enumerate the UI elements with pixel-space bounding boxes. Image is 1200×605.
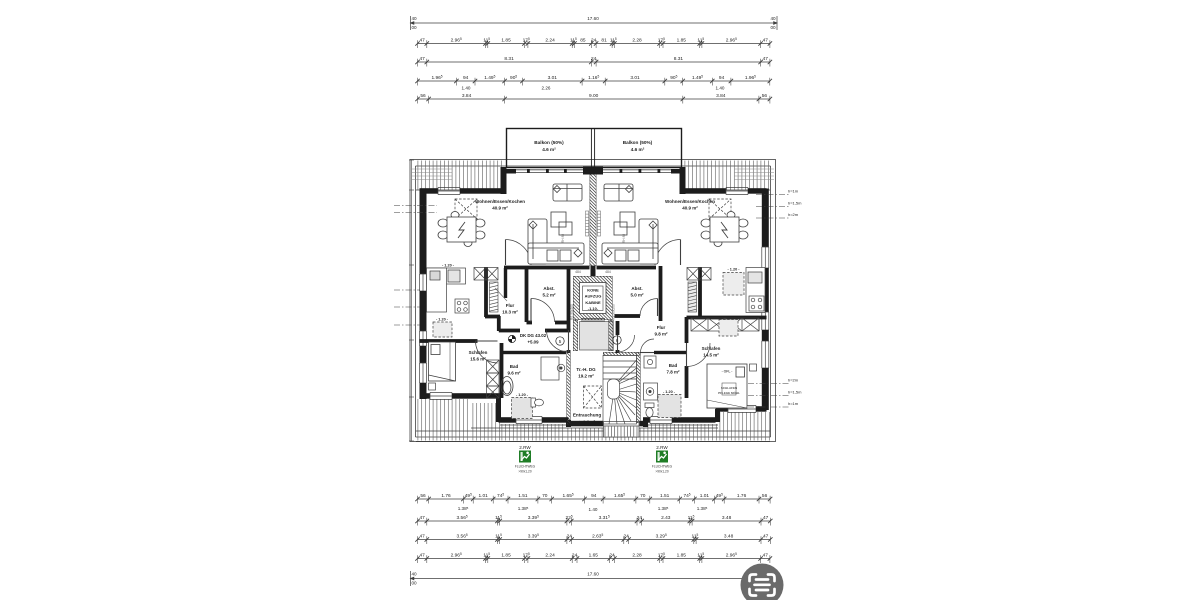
svg-text:1.85: 1.85	[501, 37, 511, 43]
svg-text:2.26: 2.26	[542, 86, 551, 91]
svg-text:10.3 m²: 10.3 m²	[502, 310, 518, 315]
svg-text:1.85: 1.85	[677, 37, 687, 43]
svg-text:2.RW: 2.RW	[656, 445, 668, 450]
svg-text:h=1m: h=1m	[788, 189, 799, 194]
svg-text:AUFZUG: AUFZUG	[585, 294, 602, 299]
svg-text:17.60: 17.60	[587, 572, 599, 577]
svg-text:8.31: 8.31	[504, 56, 514, 62]
svg-text:47: 47	[763, 56, 769, 62]
svg-text:KABINE: KABINE	[585, 300, 601, 305]
svg-text:- 1.20 -: - 1.20 -	[436, 318, 449, 322]
svg-text:24: 24	[637, 515, 643, 521]
svg-text:2.28: 2.28	[632, 552, 642, 558]
svg-text:h=1,5m: h=1,5m	[788, 390, 802, 395]
svg-text:Bad: Bad	[669, 363, 678, 368]
svg-text:h=2m: h=2m	[788, 378, 799, 383]
svg-text:>90x1,20: >90x1,20	[655, 470, 668, 474]
svg-text:Wohnen/Essen/Kochen: Wohnen/Essen/Kochen	[475, 199, 525, 204]
svg-text:1.85: 1.85	[501, 552, 511, 558]
svg-text:- OFL -: - OFL -	[722, 370, 733, 374]
svg-text:47: 47	[763, 515, 769, 521]
svg-text:1.65: 1.65	[589, 552, 599, 558]
svg-text:8.31: 8.31	[674, 56, 684, 62]
svg-text:24: 24	[572, 552, 578, 558]
svg-text:RS 90x200: RS 90x200	[570, 304, 574, 320]
svg-text:94: 94	[591, 493, 597, 499]
svg-text:Abst.: Abst.	[631, 286, 642, 291]
svg-text:1.40: 1.40	[462, 86, 471, 91]
svg-text:2.RW: 2.RW	[519, 445, 531, 450]
svg-text:KONE: KONE	[587, 288, 599, 293]
svg-text:Flur: Flur	[657, 325, 666, 330]
svg-text:56: 56	[420, 93, 426, 99]
svg-text:- 1.20 -: - 1.20 -	[442, 264, 455, 268]
svg-text:2.43: 2.43	[661, 515, 671, 521]
svg-text:DK DG 43.02: DK DG 43.02	[520, 333, 547, 338]
svg-text:Tr.-H. DG: Tr.-H. DG	[576, 367, 596, 372]
svg-text:40: 40	[770, 16, 776, 21]
svg-text:> 1.0m²: > 1.0m²	[579, 419, 595, 424]
svg-text:Entrauchung: Entrauchung	[573, 413, 602, 418]
svg-text:9.8 m²: 9.8 m²	[654, 332, 668, 337]
svg-text:Balkon (50%): Balkon (50%)	[623, 140, 653, 145]
svg-text:40: 40	[411, 572, 417, 577]
svg-text:47: 47	[420, 56, 426, 62]
svg-text:+5.09: +5.09	[527, 340, 539, 345]
svg-text:00: 00	[411, 25, 417, 30]
svg-text:9.00: 9.00	[589, 93, 599, 99]
svg-text:1.51: 1.51	[660, 493, 670, 499]
svg-text:2.24: 2.24	[545, 37, 555, 43]
svg-text:3.01: 3.01	[630, 75, 640, 81]
svg-text:- 1.20 -: - 1.20 -	[727, 268, 740, 272]
svg-text:56: 56	[762, 493, 768, 499]
svg-text:3.48: 3.48	[724, 533, 734, 539]
svg-text:24: 24	[591, 56, 597, 62]
svg-text:40.9 m²: 40.9 m²	[682, 206, 698, 211]
svg-text:1.40: 1.40	[589, 507, 598, 512]
svg-text:24: 24	[591, 37, 597, 43]
svg-text:4.6 m²: 4.6 m²	[631, 147, 645, 152]
svg-text:94: 94	[719, 75, 725, 81]
svg-text:484: 484	[605, 270, 611, 274]
svg-text:h=1m: h=1m	[788, 401, 799, 406]
svg-text:Schlafen: Schlafen	[469, 350, 488, 355]
svg-text:h=2m: h=2m	[788, 212, 799, 217]
svg-text:56: 56	[420, 493, 426, 499]
svg-text:47: 47	[420, 533, 426, 539]
svg-text:1.51: 1.51	[518, 493, 528, 499]
svg-text:-1.10-: -1.10-	[588, 306, 599, 311]
svg-text:24: 24	[567, 533, 573, 539]
svg-text:47: 47	[763, 37, 769, 43]
svg-text:FLUCHTWEG: FLUCHTWEG	[515, 465, 536, 469]
svg-text:2.24: 2.24	[545, 552, 555, 558]
svg-text:Wohnen/Essen/Kochen: Wohnen/Essen/Kochen	[665, 199, 715, 204]
svg-text:81: 81	[601, 37, 607, 43]
svg-text:4.6 m²: 4.6 m²	[542, 147, 556, 152]
svg-text:70: 70	[542, 493, 548, 499]
svg-text:1.40: 1.40	[716, 86, 725, 91]
svg-text:1.76: 1.76	[737, 493, 747, 499]
svg-text:PFLEGE MÖBL: PFLEGE MÖBL	[718, 390, 740, 395]
svg-text:5.2 m²: 5.2 m²	[542, 293, 556, 298]
svg-text:RS 90x200: RS 90x200	[612, 304, 616, 320]
svg-text:40.9 m²: 40.9 m²	[492, 206, 508, 211]
svg-text:47: 47	[420, 552, 426, 558]
svg-text:1.76: 1.76	[441, 493, 451, 499]
svg-text:1.85: 1.85	[677, 552, 687, 558]
svg-text:00: 00	[770, 25, 776, 30]
svg-text:17.60: 17.60	[587, 16, 599, 21]
svg-text:94: 94	[463, 75, 469, 81]
svg-text:00: 00	[411, 581, 417, 586]
svg-text:40: 40	[411, 16, 417, 21]
svg-text:3.84: 3.84	[716, 93, 726, 99]
svg-text:70: 70	[640, 493, 646, 499]
svg-text:SCHLAFEN: SCHLAFEN	[721, 386, 737, 390]
svg-text:Balkon (50%): Balkon (50%)	[534, 140, 564, 145]
svg-text:9.6 m²: 9.6 m²	[507, 371, 521, 376]
svg-text:47: 47	[420, 37, 426, 43]
svg-text:- 1.20 -: - 1.20 -	[663, 390, 676, 394]
svg-text:h=1,5m: h=1,5m	[788, 201, 802, 206]
svg-text:484: 484	[575, 270, 581, 274]
svg-text:19.2 m²: 19.2 m²	[578, 374, 594, 379]
svg-text:FLUCHTWEG: FLUCHTWEG	[652, 465, 673, 469]
svg-text:24: 24	[609, 552, 615, 558]
svg-text:Bad: Bad	[510, 364, 519, 369]
svg-text:Abst.: Abst.	[543, 286, 554, 291]
svg-text:Schlafen: Schlafen	[702, 346, 721, 351]
svg-text:2.28: 2.28	[632, 37, 642, 43]
svg-text:>90x1,20: >90x1,20	[518, 470, 531, 474]
svg-text:3.48: 3.48	[722, 515, 732, 521]
svg-text:24: 24	[624, 533, 630, 539]
svg-text:47: 47	[763, 533, 769, 539]
svg-text:5.0 m²: 5.0 m²	[630, 293, 644, 298]
svg-text:47: 47	[420, 515, 426, 521]
svg-text:15.6 m²: 15.6 m²	[470, 357, 486, 362]
svg-text:3.01: 3.01	[548, 75, 558, 81]
svg-text:Flur: Flur	[506, 303, 515, 308]
svg-text:47: 47	[763, 552, 769, 558]
svg-text:1.01: 1.01	[700, 493, 710, 499]
svg-text:- 1.20 -: - 1.20 -	[516, 393, 529, 397]
svg-text:56: 56	[762, 93, 768, 99]
svg-text:7.8 m²: 7.8 m²	[666, 370, 680, 375]
svg-text:3.84: 3.84	[462, 93, 472, 99]
svg-text:5: 5	[559, 339, 562, 344]
svg-text:1.01: 1.01	[479, 493, 489, 499]
svg-text:85: 85	[580, 37, 586, 43]
